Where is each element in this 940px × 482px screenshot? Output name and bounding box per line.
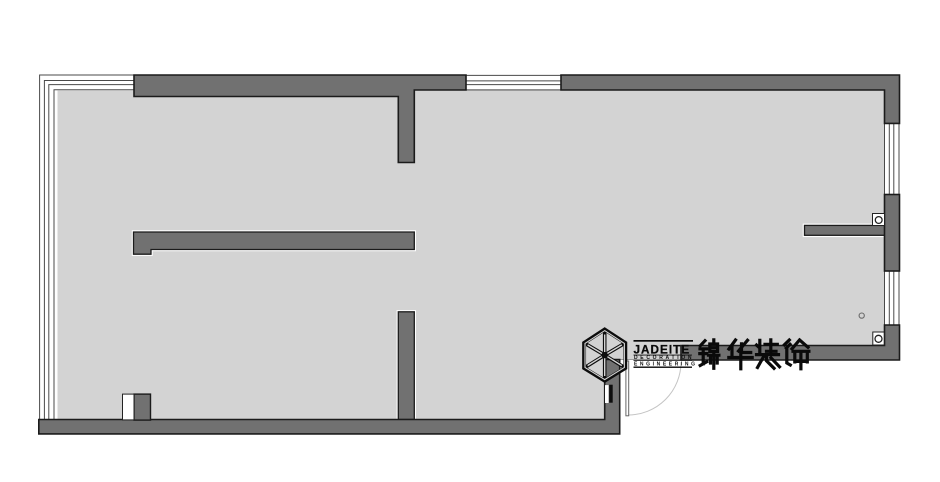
svg-text:DECORATION: DECORATION: [634, 355, 694, 361]
svg-text:ENGINEERING: ENGINEERING: [634, 362, 698, 368]
